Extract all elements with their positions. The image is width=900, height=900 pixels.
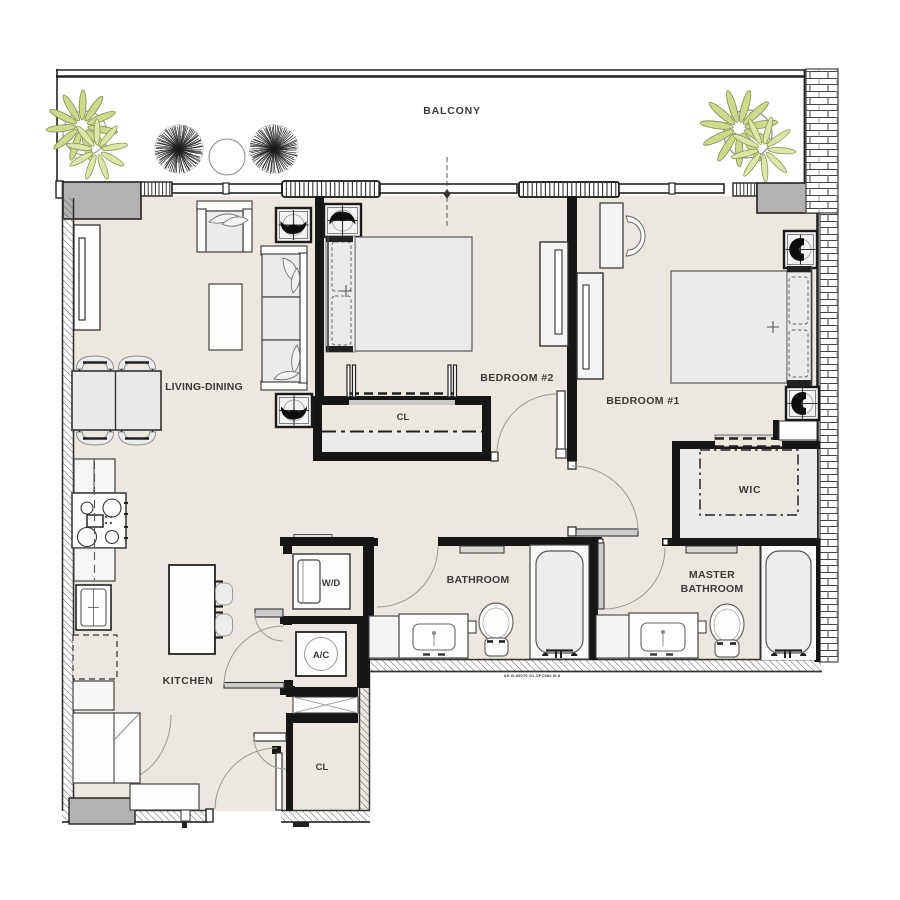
svg-text:BATHROOM: BATHROOM — [681, 583, 744, 595]
svg-text:AE B-89076 S1-SFC982 B-8: AE B-89076 S1-SFC982 B-8 — [504, 673, 561, 678]
svg-text:MASTER: MASTER — [689, 569, 735, 581]
svg-text:BATHROOM: BATHROOM — [447, 574, 510, 586]
svg-text:BEDROOM #2: BEDROOM #2 — [480, 372, 553, 384]
svg-text:CL: CL — [397, 412, 410, 423]
svg-text:KITCHEN: KITCHEN — [163, 675, 214, 687]
svg-text:WIC: WIC — [739, 484, 762, 496]
svg-text:CL: CL — [316, 762, 329, 773]
svg-text:BEDROOM #1: BEDROOM #1 — [606, 395, 679, 407]
svg-text:W/D: W/D — [322, 578, 341, 589]
svg-text:BALCONY: BALCONY — [423, 105, 481, 117]
svg-text:A/C: A/C — [313, 650, 330, 661]
svg-text:LIVING-DINING: LIVING-DINING — [165, 381, 243, 393]
